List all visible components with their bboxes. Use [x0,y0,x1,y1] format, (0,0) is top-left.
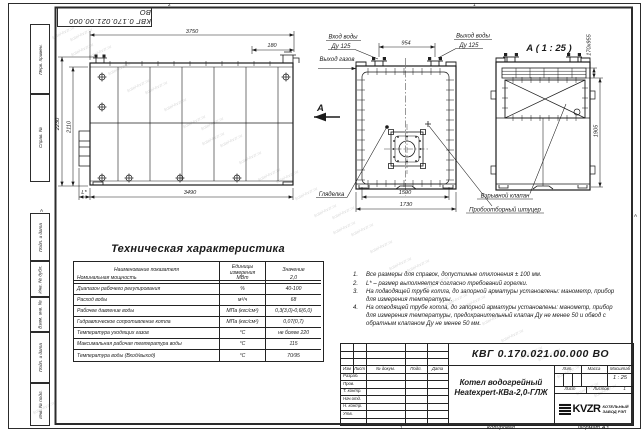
spec-row-value: 68 [266,295,321,306]
tb-lit-label: Лит. [554,365,581,373]
tb-col-data: Дата [427,365,448,373]
zone-marker-right: А [634,213,638,218]
spec-table: Наименование показателя Единицы измерени… [73,261,324,362]
front-view [356,43,456,212]
dim-1590: 1590 [399,190,412,196]
spec-row-name: Диапазон рабочего регулирования [74,284,220,295]
dim-1905: 1905 [594,124,600,137]
frame-col-vzam-inv: Взам. инв. № [30,296,50,333]
spec-row-unit: МПа (кгс/см²) [220,306,266,317]
side-view [58,31,299,200]
spec-row-value: 0,07(0,7) [266,317,321,328]
dim-180: 180 [267,43,277,49]
spec-table-title: Техническая характеристика [75,243,321,255]
spec-row-value: 70/95 [266,350,321,361]
dim-170x955: 170х955 [587,33,593,55]
company-name: КОТЕЛЬНЫЙ ЗАВОД РЭП [602,405,628,414]
tb-row-prov: Пров. [341,380,368,388]
tb-scale-value: 1 : 25 [607,373,633,387]
spec-row-value: 40-100 [266,284,321,295]
sampling-port-label: Пробоотборный штуцер [469,207,541,214]
product-name-line1: Котел водогрейный [460,379,543,387]
dim-1730: 1730 [400,202,413,208]
zone-marker-top-left: 2 [168,2,171,7]
explosion-valve-label: Взрывной клапан [481,193,530,200]
gas-outlet-label: Выход газов [320,57,355,63]
dim-2110: 2110 [67,120,73,134]
kvzr-logo-icon [559,403,571,415]
tb-col-izm: Изм [341,365,353,373]
frame-col-perv-primen: Перв. примен. [30,24,50,95]
title-block-doc-number: КВГ 0.170.021.00.000 ВО [448,344,633,365]
company-logo-cell: KVZR КОТЕЛЬНЫЙ ЗАВОД РЭП [554,393,633,425]
tb-col-docnum: № докум. [366,365,405,373]
spec-row-name: Температура уходящих газов [74,328,220,339]
tb-mass-label: Масса [581,365,607,373]
water-outlet-label: Выход воды [456,34,490,40]
water-outlet-dn-label: Ду 125 [459,43,480,49]
note-item: 4.На отводящей трубе котла, до запорной … [353,305,621,328]
spec-row-unit: МПа (кгс/см²) [220,317,266,328]
spec-row-unit: °С [220,350,266,361]
frame-col-inv-dubl: Инв. № дубл. [30,260,50,298]
dim-2230: 2230 [55,117,61,131]
note-item: 2.L* – размер выполняется согласно требо… [353,281,621,289]
tb-row-utv: Утв. [341,410,368,418]
spec-row-name: Номинальная мощность [74,273,220,284]
title-block: КВГ 0.170.021.00.000 ВО Изм Лист № докум… [340,343,634,426]
frame-col-sprav-no: Справ. № [30,93,50,182]
spec-row-name: Температура воды (Вход/выход) [74,350,220,361]
section-letter: А [316,103,324,114]
frame-col-podp-data-2: Подп. и дата [30,331,50,384]
tb-row-nkontr: Н. контр. [341,403,368,411]
spec-row-unit: МВт [220,273,266,284]
dim-3750: 3750 [186,29,199,35]
notes-list: 1.Все размеры для справок, допустимые от… [353,272,621,329]
spec-row-name: Гидравлическое сопротивление котла [74,317,220,328]
tb-sheets-value: 1 [623,387,625,391]
spec-row-unit: °С [220,328,266,339]
tb-col-podp: Подп. [405,365,427,373]
frame-col-inv-podl: Инв. № подл. [30,382,50,426]
tb-sheets-label: Листов [593,387,609,391]
kvzr-logo-text: KVZR [573,404,601,415]
spec-row-value: 0,3(3,0)-0,6(6,0) [266,306,321,317]
company-name-line2: ЗАВОД РЭП [602,410,626,414]
zone-marker-top-right: 1 [473,2,476,7]
tb-sheets-cell: Листов 1 [586,386,633,393]
drawing-sheet: kotel-kvzr.rukotel-kvzr.rukotel-kvzr.ruk… [0,0,644,430]
tb-row-nachotd: Нач.отд. [341,395,368,403]
top-doc-number-box: КВГ 0.170.021.00.000 ВО [57,7,152,27]
detail-view-title: А ( 1 : 25 ) [525,43,571,54]
water-inlet-dn-label: Ду 125 [331,44,352,50]
top-doc-number: КВГ 0.170.021.00.000 ВО [58,8,151,26]
spec-row-name: Рабочее давление воды [74,306,220,317]
spec-row-value: 2,0 [266,273,321,284]
tb-scale-label: Масштаб [607,365,633,373]
spec-row-name: Максимальная рабочая температура воды [74,339,220,350]
note-item: 1.Все размеры для справок, допустимые от… [353,272,621,280]
spec-row-unit: м³/ч [220,295,266,306]
section-arrow-a: А [314,103,340,117]
sight-glass-label: Гляделка [319,192,345,198]
water-inlet-label: Вход воды [328,35,358,41]
spec-row-unit: % [220,284,266,295]
tb-row-tkontr: Т. контр. [341,388,368,396]
spec-row-name: Расход воды [74,295,220,306]
tb-sheet-label: Лист [554,386,586,393]
product-name-cell: Котел водогрейный Heatexpert-КВа-2,0-ГЛЖ [448,368,554,408]
spec-row-value: не более 220 [266,328,321,339]
tb-col-list: Лист [353,365,366,373]
product-name-line2: Heatexpert-КВа-2,0-ГЛЖ [454,389,547,397]
note-item: 3.На подводящей трубе котла, до запорной… [353,289,621,304]
spec-row-value: 115 [266,339,321,350]
spec-row-unit: °С [220,339,266,350]
frame-col-podp-data-1: Подп. и дата [30,213,50,262]
detail-view-a [491,53,603,190]
company-name-line1: КОТЕЛЬНЫЙ [602,405,628,409]
dim-954: 954 [401,41,410,47]
dim-3490: 3490 [184,190,197,196]
dim-l-star: L* [81,190,87,196]
tb-row-razrab: Разраб. [341,373,368,381]
